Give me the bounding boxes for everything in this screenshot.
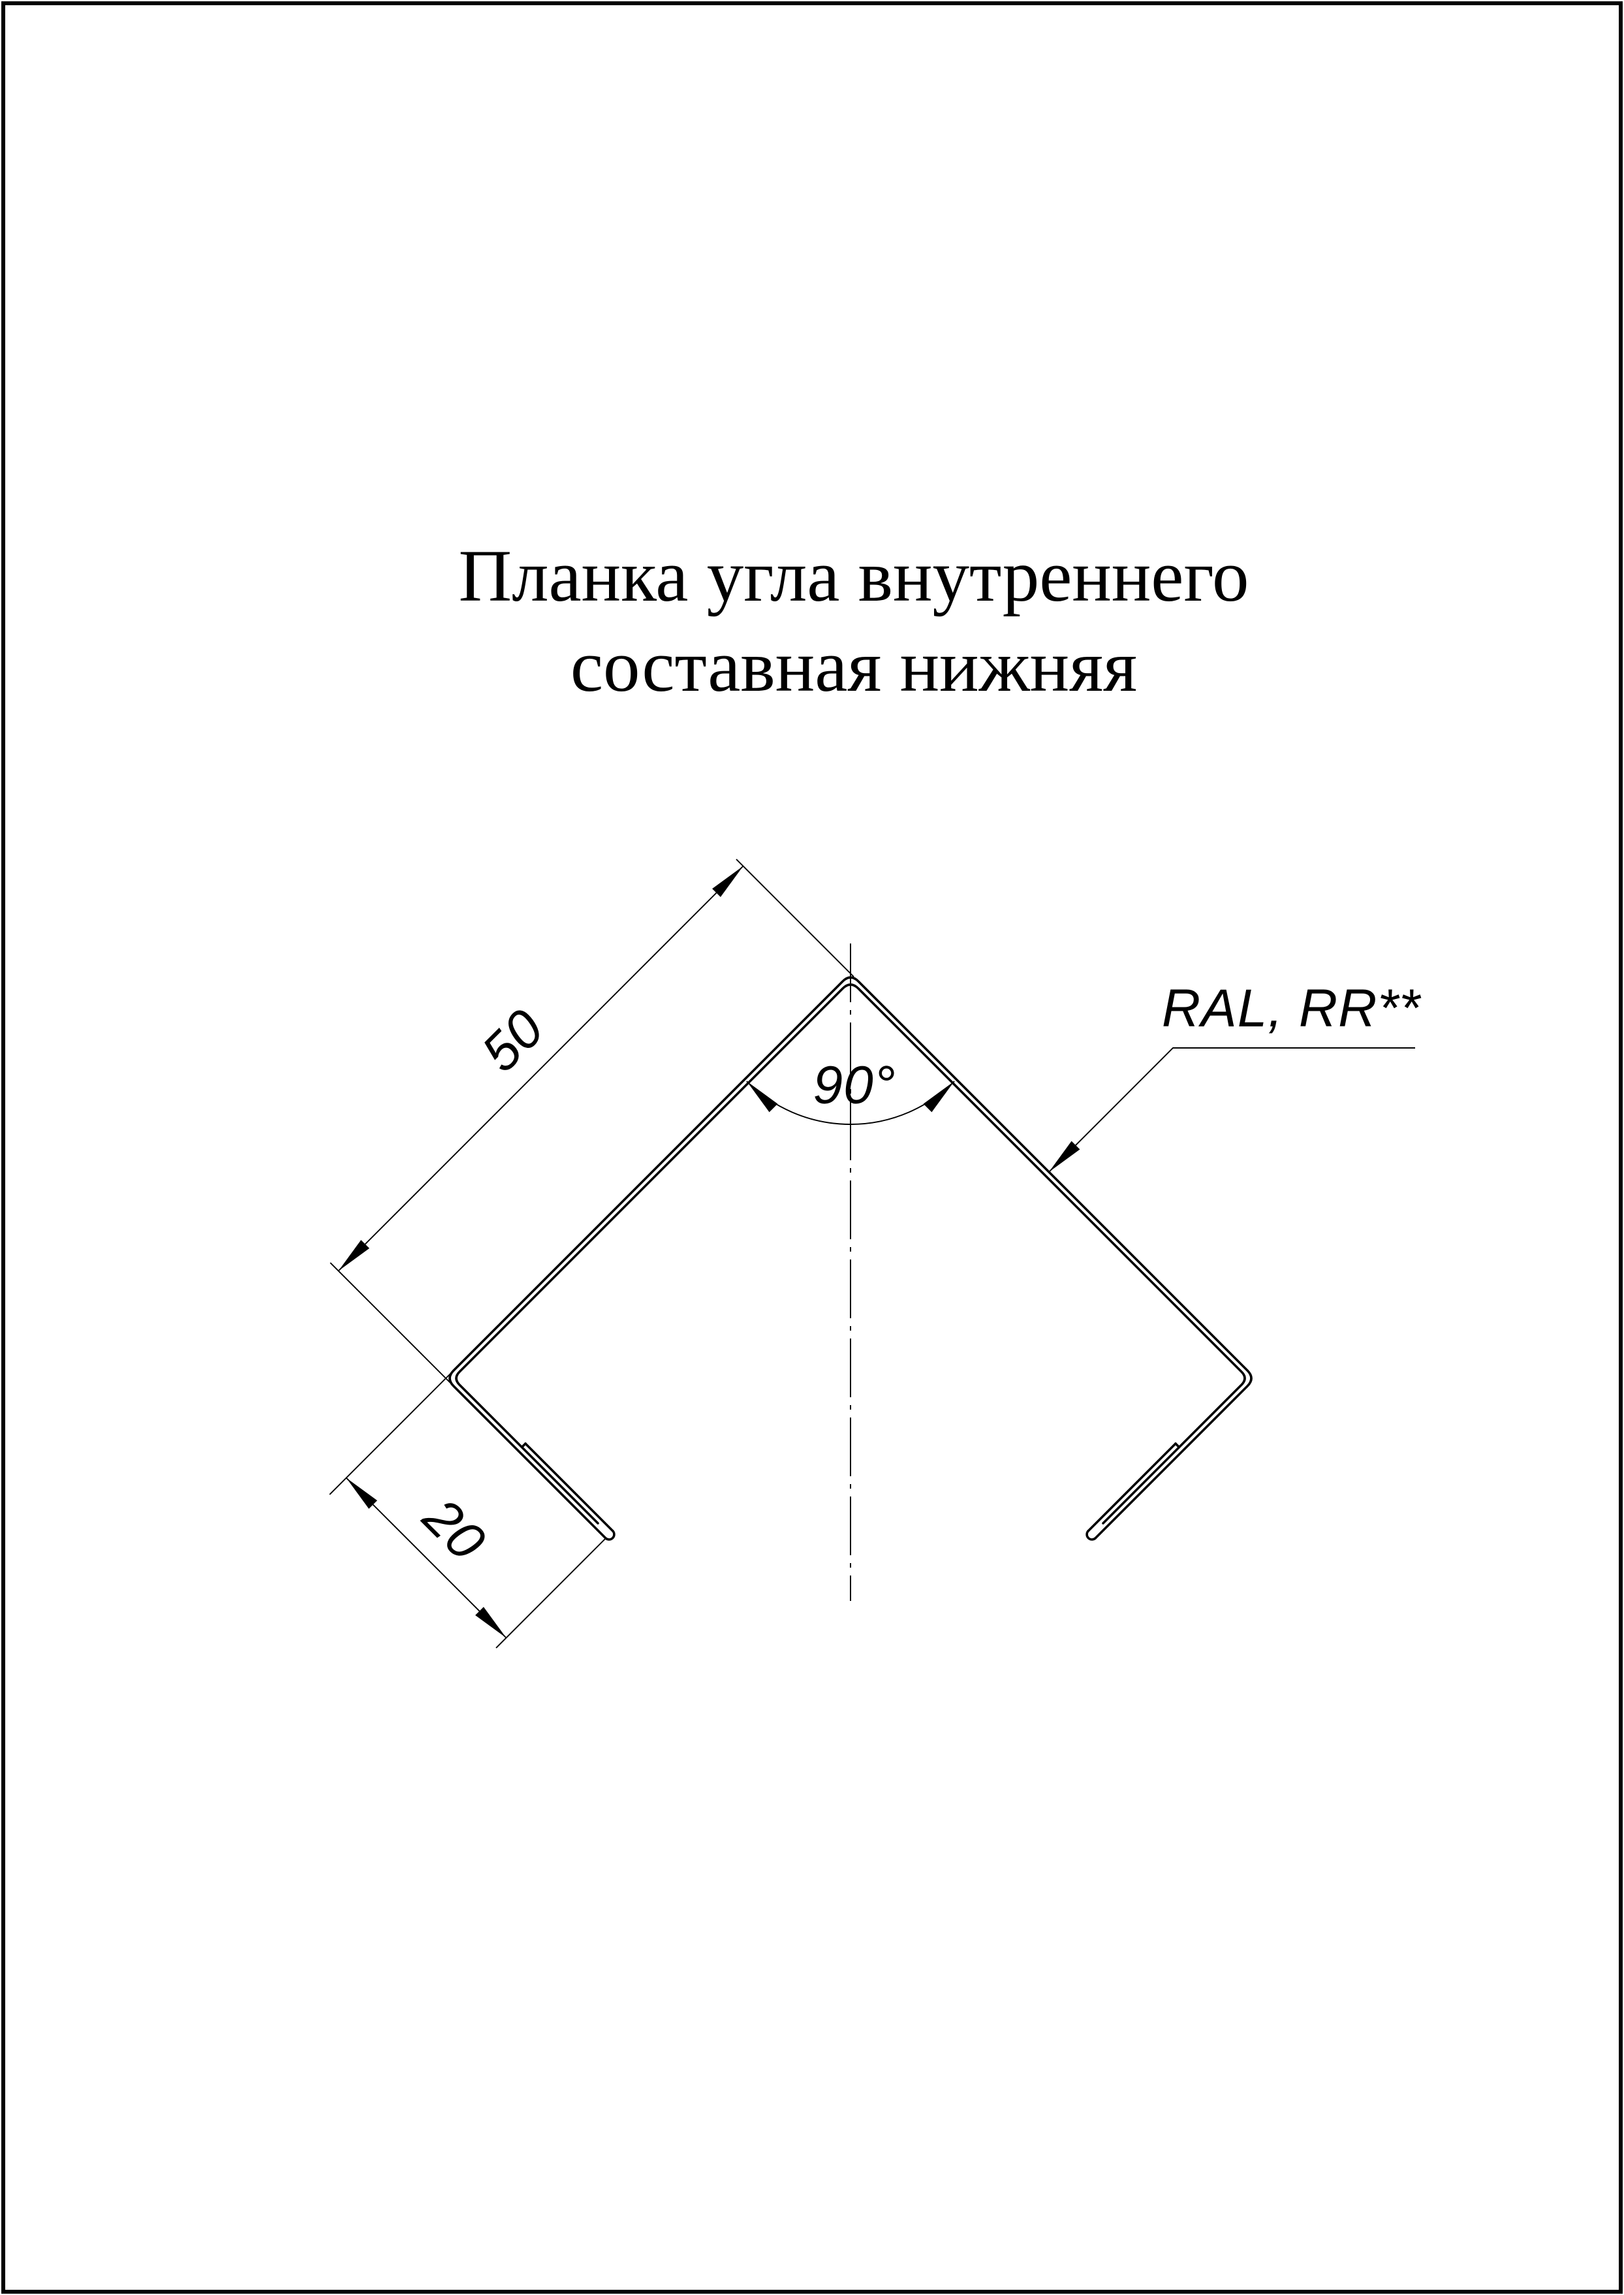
dim50-value: 50 bbox=[471, 998, 555, 1083]
leader-arrow bbox=[1049, 1141, 1080, 1172]
left-hem bbox=[522, 1444, 614, 1540]
left-hem-end-fold bbox=[606, 1531, 614, 1540]
drawing-sheet: Планка угла внутреннего составная нижняя… bbox=[0, 0, 1624, 2295]
coating-leader: RAL, RR** bbox=[1049, 979, 1422, 1172]
left-hem-step bbox=[522, 1444, 526, 1448]
title-line-2: составная нижняя bbox=[570, 625, 1137, 707]
dimension-leg: 50 bbox=[330, 859, 854, 1389]
dim20-arrow-bottom bbox=[475, 1607, 506, 1638]
dimension-flange: 20 bbox=[330, 1359, 606, 1648]
dim20-extension-tip bbox=[496, 1538, 606, 1648]
right-hem bbox=[1087, 1444, 1179, 1540]
drawing-title: Планка угла внутреннего составная нижняя bbox=[459, 535, 1249, 707]
right-hem-line bbox=[1088, 1444, 1176, 1531]
dim20-value: 20 bbox=[411, 1487, 497, 1572]
angle-arrow-left bbox=[747, 1081, 777, 1112]
dim50-line bbox=[339, 866, 743, 1271]
dim50-arrow-bottom bbox=[339, 1240, 369, 1271]
right-hem-end-fold bbox=[1087, 1531, 1095, 1540]
dim50-extension-apex bbox=[736, 859, 854, 977]
dimension-angle: 90° bbox=[747, 1056, 954, 1124]
right-hem-step bbox=[1176, 1444, 1179, 1448]
angle-arrow-right bbox=[924, 1081, 954, 1112]
dim20-extension-corner bbox=[330, 1359, 465, 1495]
sheet-border bbox=[3, 3, 1621, 2292]
coating-label: RAL, RR** bbox=[1162, 979, 1422, 1038]
dim50-extension-corner bbox=[330, 1263, 457, 1389]
dim50-arrow-top bbox=[712, 866, 743, 897]
leader-line bbox=[1049, 1048, 1415, 1172]
angle-value: 90° bbox=[813, 1056, 896, 1115]
title-line-1: Планка угла внутреннего bbox=[459, 535, 1249, 617]
left-hem-line bbox=[525, 1444, 613, 1531]
dim20-arrow-top bbox=[347, 1478, 377, 1509]
technical-drawing: Планка угла внутреннего составная нижняя… bbox=[0, 0, 1624, 2295]
